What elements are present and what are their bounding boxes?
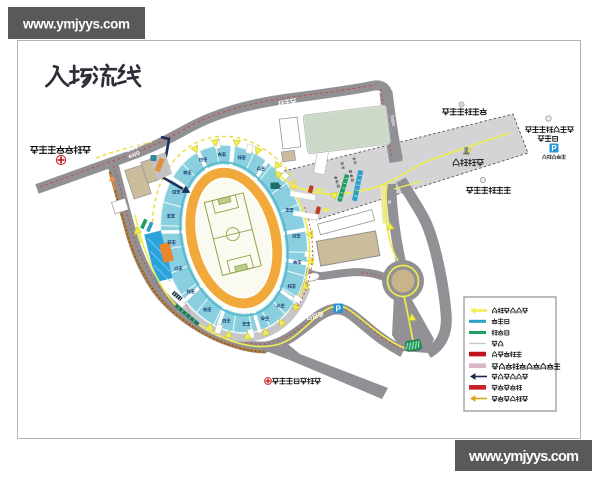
svg-text:P: P [336,304,342,313]
svg-text:www.ymjyys.com: www.ymjyys.com [22,17,130,32]
svg-text:P: P [551,144,557,153]
svg-text:www.ymjyys.com: www.ymjyys.com [468,449,579,465]
